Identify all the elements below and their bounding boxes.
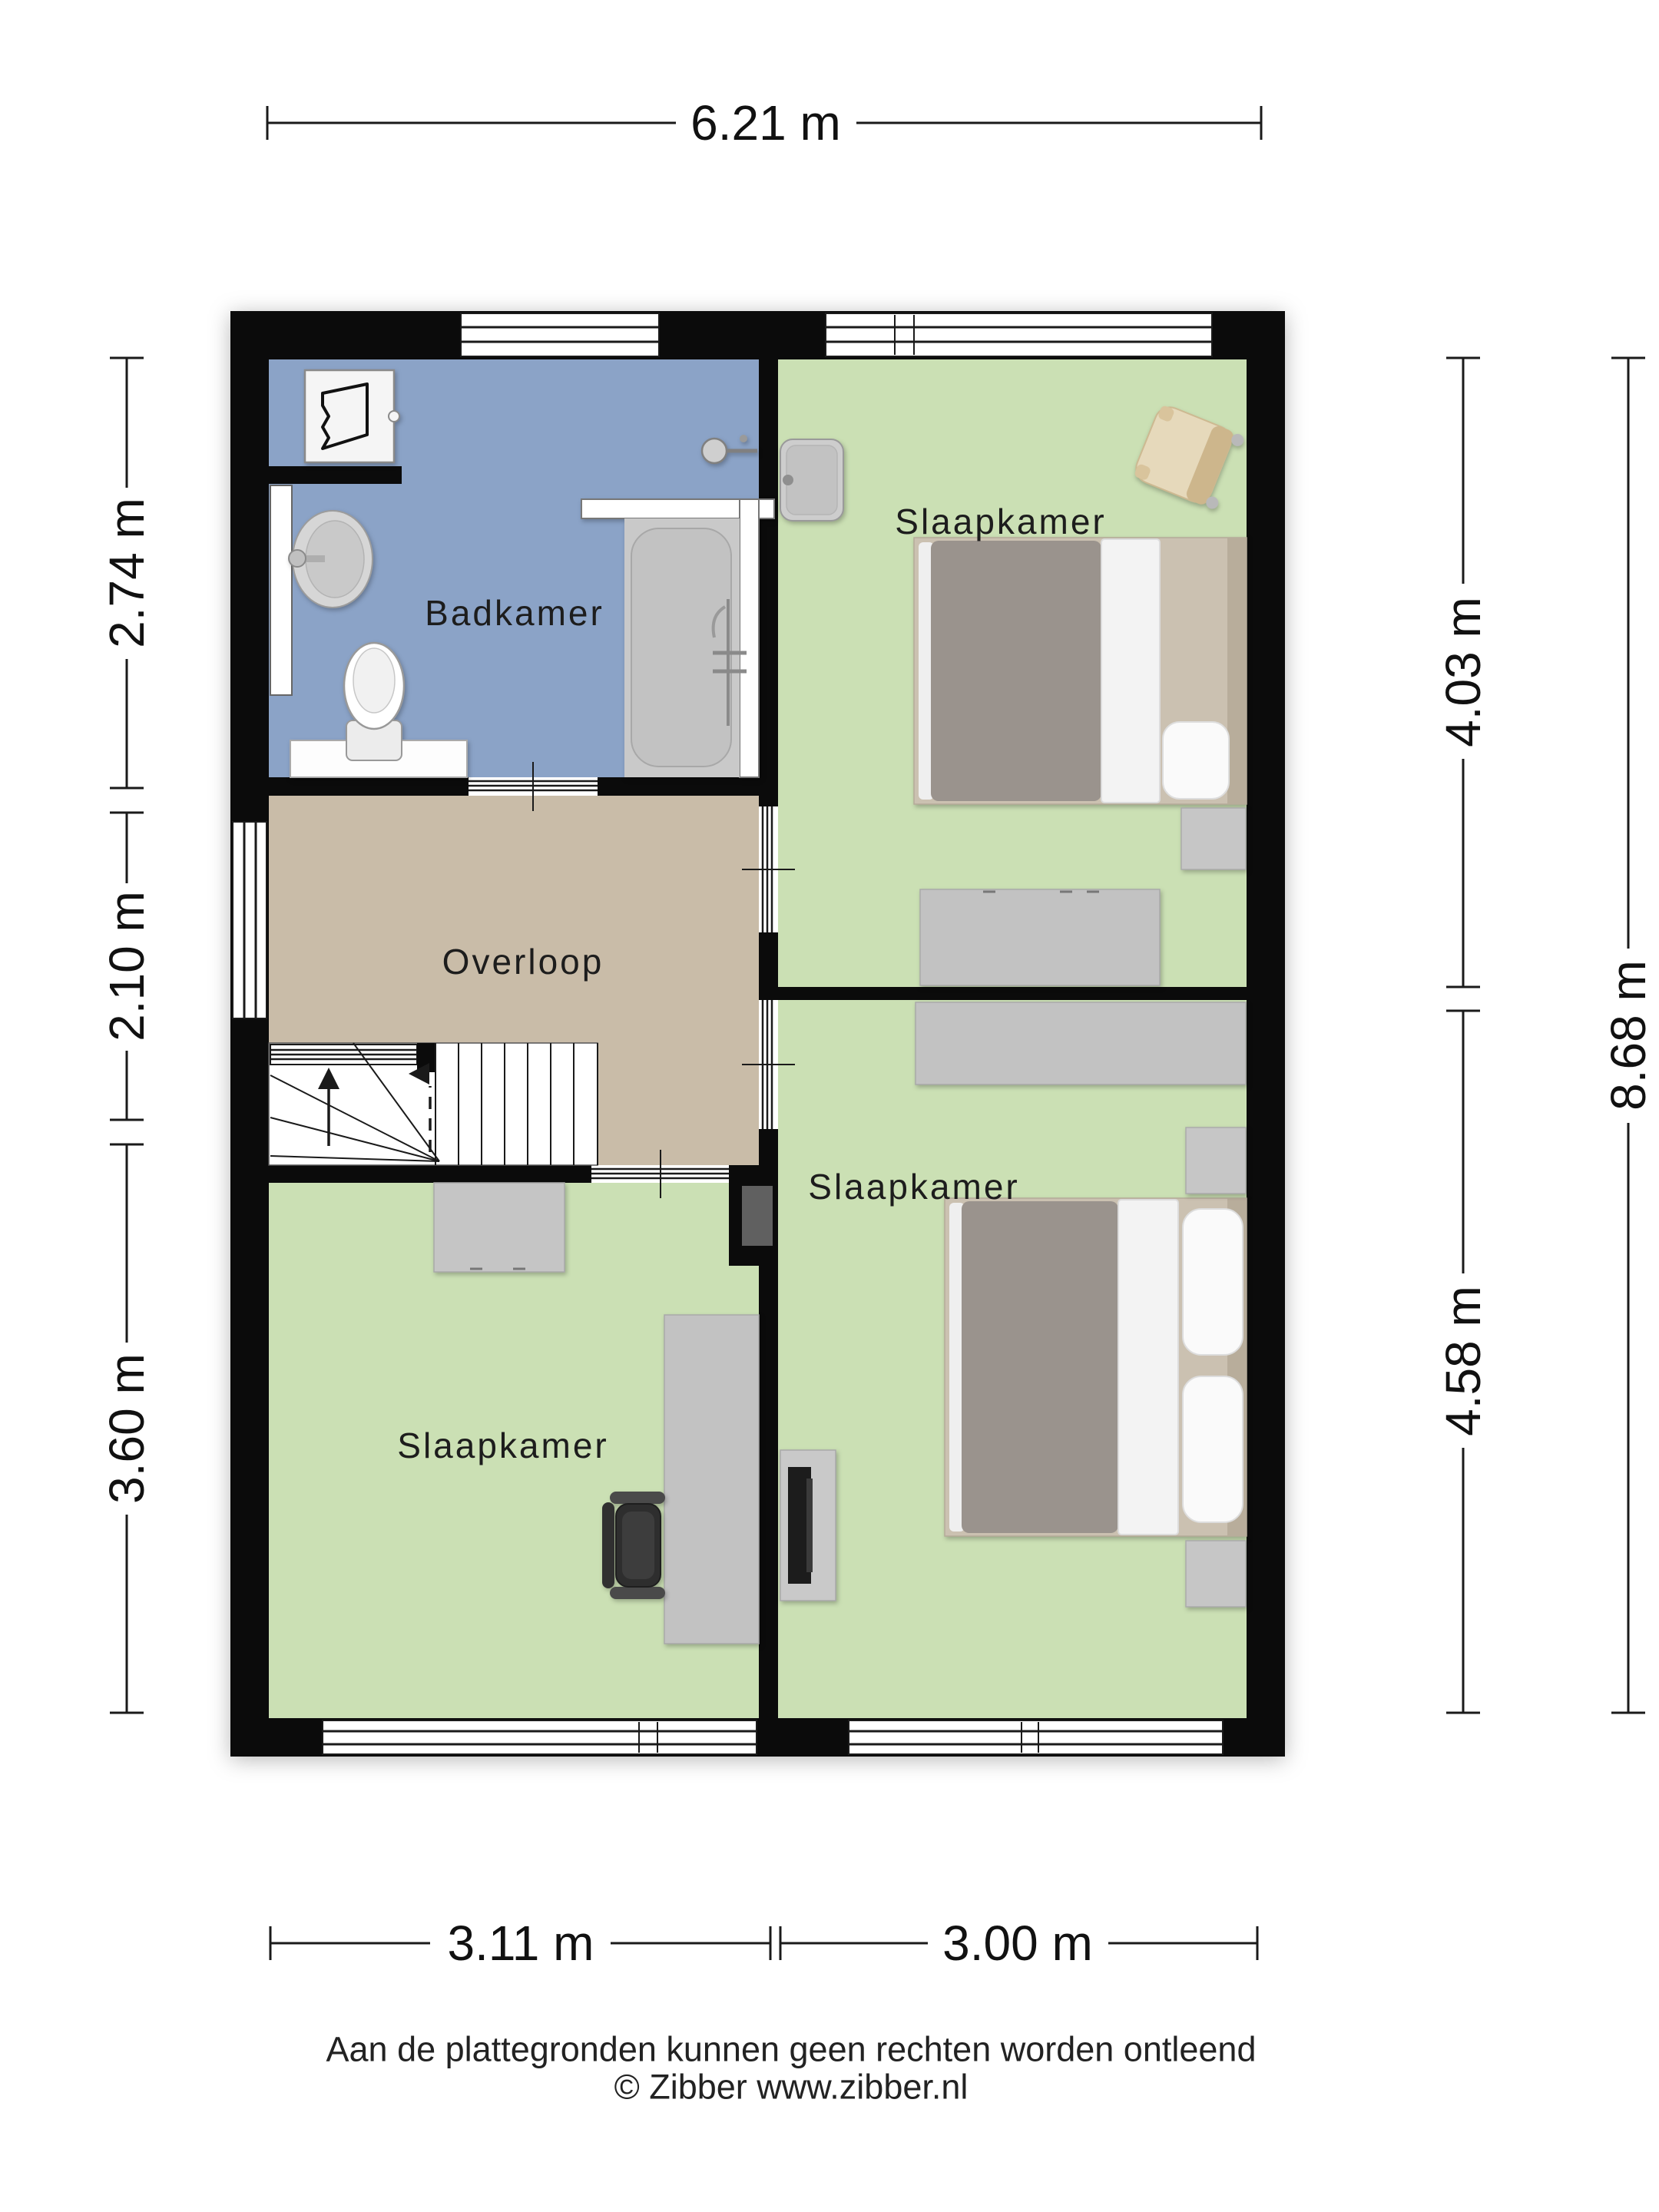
- dimension-label: 3.11 m: [448, 1916, 594, 1971]
- duvet: [962, 1201, 1118, 1533]
- duvet: [931, 541, 1101, 801]
- bed: [914, 538, 1247, 804]
- dimension-bottom-right: 3.00 m: [780, 1916, 1257, 1971]
- dimension-label: 6.21 m: [690, 95, 841, 151]
- nightstand: [1186, 1128, 1246, 1194]
- nightstand: [1181, 808, 1246, 869]
- pillow: [1163, 722, 1229, 799]
- footer-copyright: © Zibber www.zibber.nl: [614, 2068, 969, 2107]
- floor-plan-page: Badkamer Slaapkamer Overloop Slaapkamer …: [0, 0, 1659, 2212]
- dimension-left: 2.74 m 2.10 m 3.60 m: [99, 358, 154, 1713]
- bathroom-stub-wall: [269, 466, 402, 484]
- window: [233, 822, 267, 1018]
- pillow: [1183, 1209, 1243, 1355]
- room-label-overloop: Overloop: [442, 942, 604, 982]
- dimension-label: 3.60 m: [99, 1353, 154, 1504]
- window: [849, 1720, 1223, 1754]
- dimension-label: 3.00 m: [942, 1916, 1093, 1971]
- desk: [920, 889, 1160, 985]
- dimension-right-outer: 8.68 m: [1601, 358, 1656, 1713]
- dimension-label: 8.68 m: [1601, 960, 1656, 1111]
- dimension-right-inner: 4.03 m 4.58 m: [1435, 358, 1491, 1713]
- room-label-slaapkamer-rechtsboven: Slaapkamer: [895, 502, 1106, 541]
- dimension-bottom-left: 3.11 m: [270, 1916, 770, 1971]
- room-label-slaapkamer-rechtsonder: Slaapkamer: [808, 1167, 1019, 1207]
- dimension-top: 6.21 m: [267, 95, 1261, 151]
- dimension-label: 2.10 m: [99, 891, 154, 1041]
- sideboard: [916, 1002, 1246, 1084]
- dimension-label: 4.03 m: [1435, 597, 1491, 747]
- window: [323, 1720, 757, 1754]
- room-label-badkamer: Badkamer: [425, 593, 604, 633]
- desk: [664, 1315, 759, 1644]
- dimension-label: 2.74 m: [99, 498, 154, 648]
- dresser: [434, 1183, 565, 1272]
- blanket: [1118, 1200, 1178, 1535]
- floor-plan: Badkamer Slaapkamer Overloop Slaapkamer …: [230, 311, 1285, 1757]
- stairs: [269, 1043, 598, 1165]
- footer-disclaimer: Aan de plattegronden kunnen geen rechten…: [326, 2030, 1257, 2069]
- blanket: [1101, 539, 1160, 803]
- washing-machine: [305, 370, 399, 462]
- pillow: [1183, 1376, 1243, 1522]
- chimney-duct: [729, 1165, 778, 1266]
- wall-recess: [270, 485, 292, 695]
- window: [826, 313, 1212, 356]
- dimension-label: 4.58 m: [1435, 1286, 1491, 1436]
- bed: [945, 1198, 1247, 1536]
- wash-basin: [780, 439, 843, 521]
- office-chair: [602, 1492, 665, 1599]
- room-label-slaapkamer-linksonder: Slaapkamer: [397, 1426, 608, 1465]
- window: [461, 313, 659, 356]
- headboard: [1227, 538, 1247, 804]
- nightstand: [1186, 1541, 1246, 1607]
- tv-cabinet: [780, 1450, 836, 1601]
